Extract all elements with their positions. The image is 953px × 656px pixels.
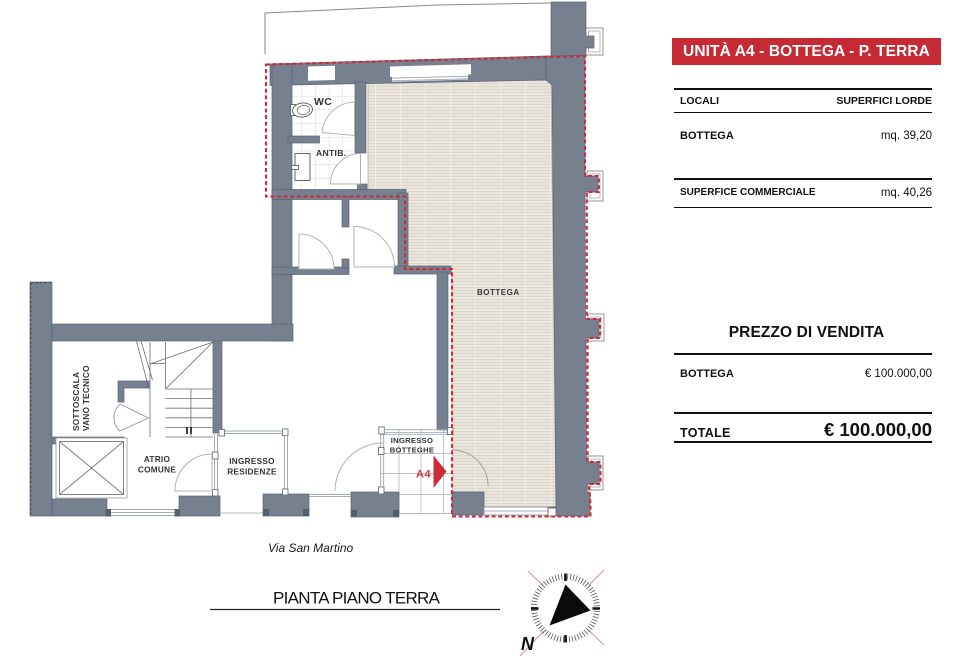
svg-text:BOTTEGA: BOTTEGA	[477, 288, 520, 297]
svg-text:ATRIO: ATRIO	[144, 455, 171, 464]
svg-text:INGRESSO: INGRESSO	[229, 457, 275, 466]
svg-text:RESIDENZE: RESIDENZE	[227, 468, 277, 477]
svg-text:SOTTOSCALA: SOTTOSCALA	[72, 372, 81, 431]
svg-text:INGRESSO: INGRESSO	[391, 436, 434, 445]
svg-text:A4: A4	[416, 469, 431, 481]
svg-text:BOTTEGHE: BOTTEGHE	[390, 446, 435, 455]
svg-text:ANTIB.: ANTIB.	[316, 148, 346, 158]
svg-text:WC: WC	[314, 96, 332, 108]
svg-text:N: N	[521, 634, 535, 654]
svg-text:Via San Martino: Via San Martino	[268, 541, 353, 555]
svg-text:COMUNE: COMUNE	[138, 466, 176, 475]
svg-text:VANO TECNICO: VANO TECNICO	[82, 365, 91, 431]
svg-text:PIANTA PIANO TERRA: PIANTA PIANO TERRA	[273, 589, 441, 608]
